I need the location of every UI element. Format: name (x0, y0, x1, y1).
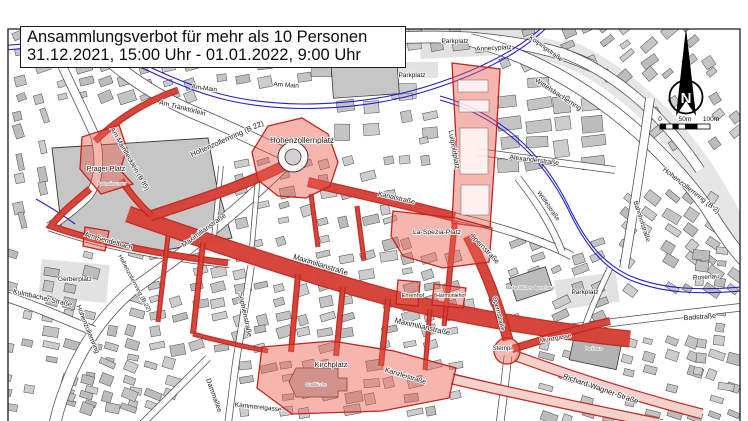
building (553, 139, 570, 157)
building (696, 353, 706, 363)
building (639, 8, 657, 25)
label-parkplatz-2: Parkplatz (398, 72, 425, 79)
building (693, 367, 702, 375)
building (697, 339, 707, 349)
building (258, 76, 273, 89)
building (399, 155, 410, 164)
building (23, 310, 32, 319)
building (472, 12, 486, 23)
building (695, 260, 709, 272)
building (454, 9, 469, 18)
building (526, 136, 548, 147)
label-parkplatz-1: Parkplatz (441, 38, 468, 45)
building (555, 116, 572, 131)
label-parkplatz-3: Parkplatz (571, 289, 598, 296)
title-line-1: Ansammlungsverbot für mehr als 10 Person… (27, 28, 399, 46)
building (239, 361, 252, 370)
building (715, 323, 725, 332)
label-prager-platz: Prager Platz (87, 166, 126, 173)
building (335, 124, 350, 140)
building (363, 123, 379, 136)
building (620, 5, 639, 23)
building (24, 385, 35, 394)
parking-row (458, 80, 488, 92)
building (498, 95, 517, 108)
building (718, 261, 727, 267)
label-gerberplatz: Gerberplatz (58, 276, 92, 283)
building (663, 8, 678, 22)
building (428, 10, 440, 19)
label-rotmaincenter: Rotmaincenter (98, 181, 127, 186)
label-kirchplatz: Kirchplatz (315, 360, 348, 369)
building (713, 335, 725, 345)
building (693, 249, 710, 260)
building (599, 4, 614, 19)
scale-bar-segments (660, 124, 710, 129)
parking-row (461, 185, 489, 215)
scale-label-0: 0 (658, 116, 662, 123)
building (680, 8, 694, 21)
building (581, 115, 603, 133)
building (217, 74, 227, 82)
building (421, 155, 431, 166)
building (359, 269, 375, 281)
building (235, 217, 248, 229)
title-box: Ansammlungsverbot für mehr als 10 Person… (20, 26, 406, 68)
label-opernhaus: Markgräfliches Opernhaus (505, 285, 554, 290)
title-line-2: 31.12.2021, 15:00 Uhr - 01.01.2022, 9:00… (27, 46, 399, 64)
label-parkhaus: Parkhaus (585, 346, 603, 351)
building (150, 326, 161, 337)
building (383, 156, 394, 165)
label-ehrenhof: Ehrenhof (402, 293, 425, 299)
label-sternplatz: Sternpl. (493, 346, 514, 352)
north-arrow-n: N (681, 90, 692, 107)
building (581, 9, 594, 19)
label-stadtkirche: Stadtkirche (306, 382, 328, 387)
parking-row (459, 100, 489, 112)
building (43, 280, 55, 292)
building (14, 173, 25, 184)
building (170, 343, 186, 356)
scale-label-50m: 50m (679, 116, 692, 123)
label-la-spezia-platz: La-Spezia-Platz (413, 229, 462, 236)
scale-label-100m: 100m (703, 116, 719, 123)
map-page: Am Main Am Main Am Tränktörlein Hohenzol… (0, 0, 748, 421)
building (297, 72, 311, 82)
building (64, 283, 76, 293)
parking-row (460, 128, 488, 174)
label-harmoniehof: Harmoniehof (436, 293, 466, 299)
label-hohenzollernplatz: Hohenzollernplatz (270, 136, 334, 145)
building (543, 8, 556, 18)
building (12, 111, 22, 121)
building (107, 325, 118, 337)
building (366, 9, 377, 19)
building (425, 406, 436, 416)
building (400, 110, 412, 123)
building (706, 9, 718, 21)
